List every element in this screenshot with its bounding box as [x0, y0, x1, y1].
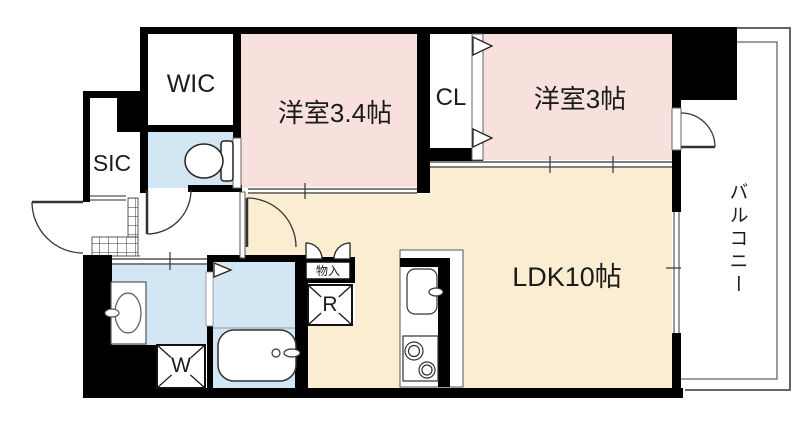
room-label-sic: SIC	[84, 148, 140, 178]
room-label-balcony: バルコニー	[722, 150, 752, 328]
stove-icon	[403, 336, 438, 381]
entrance-door-arc	[32, 202, 83, 253]
floorplan-canvas	[0, 0, 800, 425]
bathtub-icon	[218, 330, 300, 381]
label-refrigerator-space: R	[308, 288, 352, 322]
washbasin-icon	[105, 282, 146, 344]
label-washer-space: W	[157, 348, 205, 384]
room-label-closet: CL	[428, 82, 474, 114]
room-label-western-room-large: 洋室3.4帖	[253, 94, 417, 128]
label-storage: 物入	[306, 262, 350, 279]
room-label-ldk: LDK10帖	[492, 256, 642, 292]
toilet-icon	[185, 141, 233, 181]
floorplan: WIC SIC CL 洋室3.4帖 洋室3帖 LDK10帖 バルコニー 物入 R…	[0, 0, 800, 425]
entrance-tile-hatch	[90, 198, 140, 256]
toilet-door-arc	[147, 190, 191, 234]
room-label-western-room-small: 洋室3帖	[512, 80, 648, 114]
balcony-door-arc	[681, 113, 715, 147]
room-label-wic: WIC	[148, 66, 234, 102]
